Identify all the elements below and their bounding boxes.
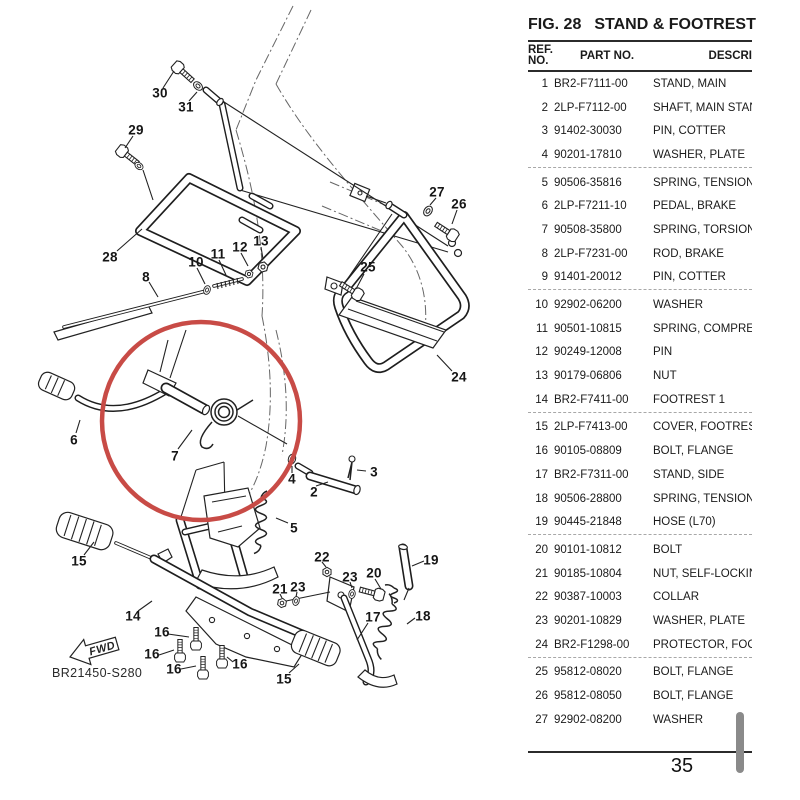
- ref-no: 21: [528, 568, 548, 580]
- part-description: SPRING, TORSION: [653, 224, 752, 236]
- ref-no: 10: [528, 299, 548, 311]
- ref-no: 6: [528, 200, 548, 212]
- part-callout[interactable]: 27: [429, 185, 445, 199]
- table-row[interactable]: 25 95812-08020 BOLT, FLANGE: [528, 661, 752, 685]
- table-row[interactable]: 17 BR2-F7311-00 STAND, SIDE: [528, 463, 752, 487]
- table-row[interactable]: 9 91401-20012 PIN, COTTER: [528, 266, 752, 291]
- part-no: 90508-35800: [554, 224, 653, 236]
- table-row[interactable]: 13 90179-06806 NUT: [528, 364, 752, 388]
- part-callout[interactable]: 10: [188, 255, 204, 269]
- part-callout[interactable]: 2: [310, 485, 318, 499]
- part-callout[interactable]: 13: [253, 234, 269, 248]
- ref-no: 22: [528, 591, 548, 603]
- part-no: 90506-35816: [554, 177, 653, 189]
- part-callout[interactable]: 25: [360, 260, 376, 274]
- highlight-circle: [102, 322, 300, 520]
- part-callout[interactable]: 16: [166, 662, 182, 676]
- part-description: NUT: [653, 370, 752, 382]
- ref-no: 19: [528, 516, 548, 528]
- part-description: ROD, BRAKE: [653, 248, 752, 260]
- part-callout[interactable]: 16: [232, 657, 248, 671]
- parts-table-panel: FIG. 28 STAND & FOOTREST REF. NO. PART N…: [528, 10, 752, 732]
- exploded-view-svg: FWD: [0, 0, 528, 800]
- part-callout[interactable]: 5: [290, 521, 298, 535]
- part-callout[interactable]: 15: [276, 672, 292, 686]
- table-row[interactable]: 2 2LP-F7112-00 SHAFT, MAIN STAND: [528, 96, 752, 120]
- figure-number: FIG. 28: [528, 16, 581, 34]
- part-callout[interactable]: 29: [128, 123, 144, 137]
- part-callout[interactable]: 4: [288, 472, 296, 486]
- part-callout[interactable]: 16: [144, 647, 160, 661]
- ref-no: 27: [528, 714, 548, 726]
- part-callout[interactable]: 14: [125, 609, 141, 623]
- part-callout[interactable]: 23: [290, 580, 306, 594]
- table-row[interactable]: 14 BR2-F7411-00 FOOTREST 1: [528, 388, 752, 413]
- part-no: 2LP-F7112-00: [554, 102, 653, 114]
- table-row[interactable]: 19 90445-21848 HOSE (L70): [528, 510, 752, 535]
- part-no: 90201-17810: [554, 149, 653, 161]
- part-callout[interactable]: 26: [451, 197, 467, 211]
- part-no: 91402-30030: [554, 125, 653, 137]
- part-no: 90501-10815: [554, 323, 653, 335]
- part-description: WASHER, PLATE: [653, 149, 752, 161]
- table-row[interactable]: 15 2LP-F7413-00 COVER, FOOTREST: [528, 416, 752, 440]
- ref-no: 13: [528, 370, 548, 382]
- table-row[interactable]: 5 90506-35816 SPRING, TENSION: [528, 171, 752, 195]
- tension-spring-18: [369, 594, 401, 660]
- table-row[interactable]: 18 90506-28800 SPRING, TENSION: [528, 487, 752, 511]
- table-row[interactable]: 23 90201-10829 WASHER, PLATE: [528, 609, 752, 633]
- nut-21: [277, 598, 287, 609]
- table-row[interactable]: 10 92902-06200 WASHER: [528, 293, 752, 317]
- part-callout[interactable]: 16: [154, 625, 170, 639]
- part-callout[interactable]: 31: [178, 100, 194, 114]
- washer-31: [192, 80, 204, 92]
- part-no: 91401-20012: [554, 271, 653, 283]
- part-description: HOSE (L70): [653, 516, 752, 528]
- part-description: PIN, COTTER: [653, 125, 752, 137]
- part-description: STAND, SIDE: [653, 469, 752, 481]
- hose-19: [398, 544, 409, 600]
- ref-no: 3: [528, 125, 548, 137]
- collar-22: [323, 567, 331, 576]
- carrier-24: [338, 196, 465, 368]
- part-no: 90445-21848: [554, 516, 653, 528]
- part-description: PIN: [653, 346, 752, 358]
- part-no: 92902-08200: [554, 714, 653, 726]
- part-description: WASHER, PLATE: [653, 615, 752, 627]
- part-no: 2LP-F7413-00: [554, 421, 653, 433]
- page-number: 35: [660, 755, 704, 778]
- ref-no: 5: [528, 177, 548, 189]
- bolt-16: [191, 628, 202, 651]
- ref-no: 16: [528, 445, 548, 457]
- part-no: 90105-08809: [554, 445, 653, 457]
- parts-diagram: FWD 30 31 29 28 8 10 11 12 13 27 26 25: [0, 0, 528, 800]
- part-no: 2LP-F7211-10: [554, 200, 653, 212]
- part-callout[interactable]: 8: [142, 270, 150, 284]
- part-callout[interactable]: 17: [365, 610, 381, 624]
- figure-name: STAND & FOOTREST: [594, 16, 755, 34]
- part-callout[interactable]: 22: [314, 550, 330, 564]
- table-row[interactable]: 22 90387-10003 COLLAR: [528, 585, 752, 609]
- part-description: SPRING, TENSION: [653, 493, 752, 505]
- figure-title: FIG. 28 STAND & FOOTREST: [528, 10, 752, 40]
- part-callout[interactable]: 20: [366, 566, 382, 580]
- part-no: BR2-F1298-00: [554, 639, 653, 651]
- part-callout[interactable]: 21: [272, 582, 288, 596]
- part-description: PIN, COTTER: [653, 271, 752, 283]
- bolt-30: [170, 60, 197, 86]
- brake-rod-8: [54, 278, 242, 340]
- part-callout[interactable]: 19: [423, 553, 439, 567]
- ref-no: 15: [528, 421, 548, 433]
- header-part-no: PART NO.: [580, 50, 634, 62]
- washer-10: [202, 285, 211, 296]
- ref-no: 1: [528, 78, 548, 90]
- part-no: 90185-10804: [554, 568, 653, 580]
- part-description: FOOTREST 1: [653, 394, 752, 406]
- part-callout[interactable]: 23: [342, 570, 358, 584]
- ref-no: 18: [528, 493, 548, 505]
- spring-hook: [385, 585, 398, 603]
- table-row[interactable]: 16 90105-08809 BOLT, FLANGE: [528, 439, 752, 463]
- part-callout[interactable]: 3: [370, 465, 378, 479]
- table-row[interactable]: 8 2LP-F7231-00 ROD, BRAKE: [528, 242, 752, 266]
- part-callout[interactable]: 24: [451, 370, 467, 384]
- header-ref-no: REF. NO.: [528, 45, 558, 68]
- part-no: 95812-08050: [554, 690, 653, 702]
- part-no: BR2-F7111-00: [554, 78, 653, 90]
- part-callout[interactable]: 30: [152, 86, 168, 100]
- table-row[interactable]: 11 90501-10815 SPRING, COMPRESS: [528, 317, 752, 341]
- table-row[interactable]: 1 BR2-F7111-00 STAND, MAIN: [528, 72, 752, 96]
- part-description: COLLAR: [653, 591, 752, 603]
- part-no: 90249-12008: [554, 346, 653, 358]
- part-callout[interactable]: 12: [232, 240, 248, 254]
- washer-23: [292, 596, 301, 606]
- table-row[interactable]: 7 90508-35800 SPRING, TORSION: [528, 218, 752, 242]
- part-no: 90101-10812: [554, 544, 653, 556]
- ref-no: 20: [528, 544, 548, 556]
- part-description: BOLT, FLANGE: [653, 666, 752, 678]
- part-description: SPRING, COMPRESS: [653, 323, 752, 335]
- table-row[interactable]: 27 92902-08200 WASHER: [528, 708, 752, 732]
- part-no: 92902-06200: [554, 299, 653, 311]
- table-row[interactable]: 12 90249-12008 PIN: [528, 341, 752, 365]
- part-callout[interactable]: 11: [211, 247, 226, 261]
- part-description: BOLT, FLANGE: [653, 445, 752, 457]
- ref-no: 7: [528, 224, 548, 236]
- part-description: PEDAL, BRAKE: [653, 200, 752, 212]
- part-description: WASHER: [653, 299, 752, 311]
- ref-no: 2: [528, 102, 548, 114]
- bolt-20: [358, 584, 385, 602]
- ref-no: 4: [528, 149, 548, 161]
- part-no: 90201-10829: [554, 615, 653, 627]
- ref-no: 12: [528, 346, 548, 358]
- parts-rows: 1 BR2-F7111-00 STAND, MAIN 2 2LP-F7112-0…: [528, 72, 752, 732]
- header-description: DESCRI: [709, 50, 752, 62]
- ref-no: 24: [528, 639, 548, 651]
- table-row[interactable]: 4 90201-17810 WASHER, PLATE: [528, 143, 752, 168]
- ref-no: 23: [528, 615, 548, 627]
- part-callout[interactable]: 15: [71, 554, 87, 568]
- part-no: 2LP-F7231-00: [554, 248, 653, 260]
- part-callout[interactable]: 7: [171, 449, 179, 463]
- fwd-label: FWD: [88, 640, 117, 659]
- washer-27: [422, 204, 434, 217]
- ref-no: 8: [528, 248, 548, 260]
- main-stand-1: [180, 462, 278, 589]
- footer-rule: [528, 751, 752, 753]
- part-description: BOLT: [653, 544, 752, 556]
- ref-no: 26: [528, 690, 548, 702]
- part-description: NUT, SELF-LOCKING: [653, 568, 752, 580]
- ref-no: 14: [528, 394, 548, 406]
- table-header: REF. NO. PART NO. DESCRI: [528, 42, 752, 70]
- part-no: 95812-08020: [554, 666, 653, 678]
- table-row[interactable]: 20 90101-10812 BOLT: [528, 538, 752, 562]
- scrollbar-thumb[interactable]: [736, 712, 744, 773]
- part-no: BR2-F7411-00: [554, 394, 653, 406]
- part-description: STAND, MAIN: [653, 78, 752, 90]
- part-description: COVER, FOOTREST: [653, 421, 752, 433]
- table-row[interactable]: 26 95812-08050 BOLT, FLANGE: [528, 684, 752, 708]
- part-description: SPRING, TENSION: [653, 177, 752, 189]
- part-callout[interactable]: 18: [415, 609, 431, 623]
- ref-no: 25: [528, 666, 548, 678]
- part-no: 90179-06806: [554, 370, 653, 382]
- table-row[interactable]: 24 BR2-F1298-00 PROTECTOR, FOOT: [528, 633, 752, 658]
- part-no: 90506-28800: [554, 493, 653, 505]
- part-no: BR2-F7311-00: [554, 469, 653, 481]
- part-callout[interactable]: 28: [102, 250, 118, 264]
- ref-no: 11: [528, 323, 548, 335]
- table-row[interactable]: 6 2LP-F7211-10 PEDAL, BRAKE: [528, 194, 752, 218]
- ref-no: 9: [528, 271, 548, 283]
- part-no: 90387-10003: [554, 591, 653, 603]
- bolt-16: [175, 640, 186, 663]
- part-callout[interactable]: 6: [70, 433, 78, 447]
- table-row[interactable]: 3 91402-30030 PIN, COTTER: [528, 119, 752, 143]
- table-row[interactable]: 21 90185-10804 NUT, SELF-LOCKING: [528, 562, 752, 586]
- drawing-code: BR21450-S280: [52, 666, 142, 680]
- part-description: PROTECTOR, FOOT: [653, 639, 752, 651]
- fwd-arrow: FWD: [66, 631, 120, 669]
- part-description: SHAFT, MAIN STAND: [653, 102, 752, 114]
- ref-no: 17: [528, 469, 548, 481]
- bolt-16: [198, 657, 209, 680]
- part-description: BOLT, FLANGE: [653, 690, 752, 702]
- cotter-pin-3: [348, 456, 355, 480]
